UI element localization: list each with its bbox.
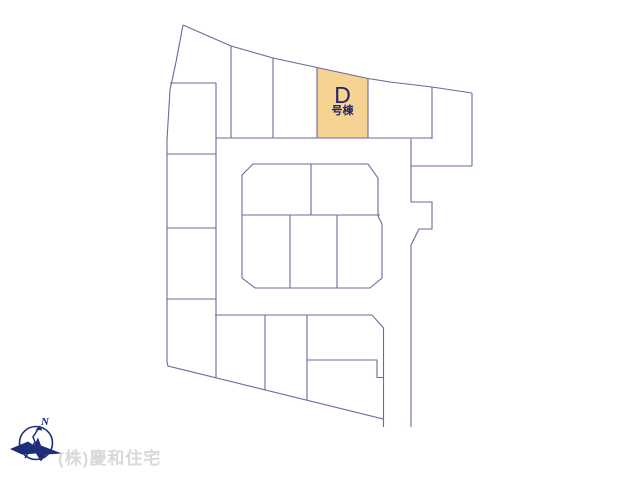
compass-north-label: N xyxy=(40,416,50,428)
site-plan-map xyxy=(0,0,640,480)
company-watermark: (株)慶和住宅 xyxy=(58,444,161,469)
highlighted-plot-sublabel: 号棟 xyxy=(317,106,368,117)
site-plan-screen: D 号棟 N (株)慶和住宅 xyxy=(0,0,640,480)
highlighted-plot-label: D xyxy=(317,84,368,107)
